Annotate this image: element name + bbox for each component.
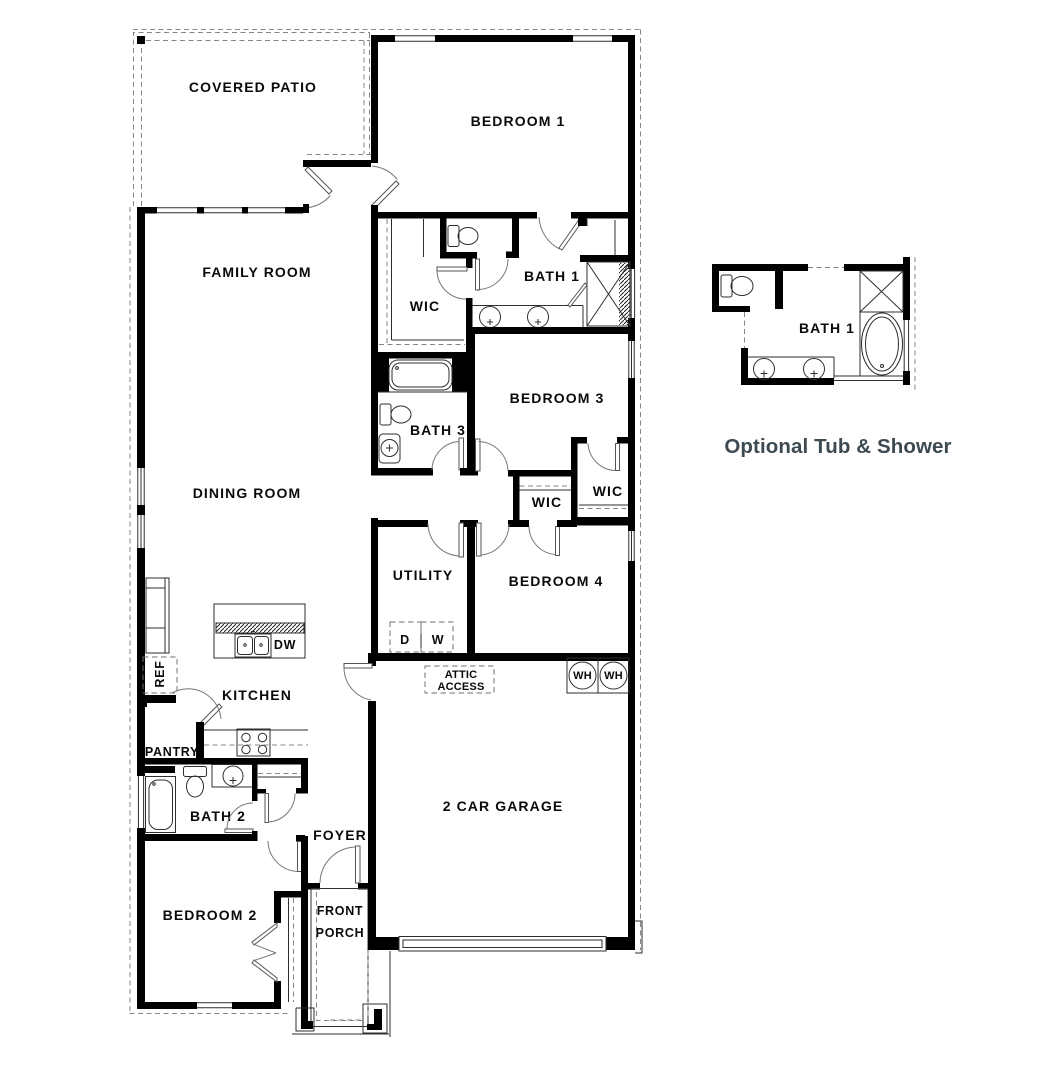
svg-text:BEDROOM 1: BEDROOM 1 xyxy=(471,113,566,129)
svg-text:BEDROOM 2: BEDROOM 2 xyxy=(163,907,258,923)
svg-text:WH: WH xyxy=(573,670,592,682)
svg-text:BEDROOM 4: BEDROOM 4 xyxy=(509,573,604,589)
svg-text:WIC: WIC xyxy=(593,483,624,499)
svg-text:COVERED PATIO: COVERED PATIO xyxy=(189,79,317,95)
svg-text:REF: REF xyxy=(153,660,167,687)
svg-text:BATH 1: BATH 1 xyxy=(799,320,855,336)
svg-text:BATH 2: BATH 2 xyxy=(190,808,246,824)
svg-text:BEDROOM 3: BEDROOM 3 xyxy=(510,390,605,406)
svg-text:PORCH: PORCH xyxy=(316,926,365,940)
svg-text:ACCESS: ACCESS xyxy=(437,681,484,693)
svg-text:KITCHEN: KITCHEN xyxy=(222,687,292,703)
svg-text:FAMILY ROOM: FAMILY ROOM xyxy=(202,264,311,280)
svg-text:FOYER: FOYER xyxy=(313,827,367,843)
svg-text:BATH 1: BATH 1 xyxy=(524,268,580,284)
svg-text:UTILITY: UTILITY xyxy=(393,567,454,583)
svg-text:W: W xyxy=(432,633,445,647)
svg-text:DINING ROOM: DINING ROOM xyxy=(193,485,302,501)
svg-text:PANTRY: PANTRY xyxy=(145,745,199,759)
svg-text:WIC: WIC xyxy=(532,494,563,510)
svg-text:D: D xyxy=(400,633,410,647)
svg-text:FRONT: FRONT xyxy=(317,904,364,918)
svg-text:2 CAR GARAGE: 2 CAR GARAGE xyxy=(443,798,564,814)
svg-text:DW: DW xyxy=(274,638,296,652)
svg-text:WIC: WIC xyxy=(410,298,441,314)
svg-text:WH: WH xyxy=(604,670,623,682)
svg-text:BATH 3: BATH 3 xyxy=(410,422,466,438)
svg-text:ATTIC: ATTIC xyxy=(445,669,478,681)
svg-text:Optional Tub & Shower: Optional Tub & Shower xyxy=(724,435,951,458)
